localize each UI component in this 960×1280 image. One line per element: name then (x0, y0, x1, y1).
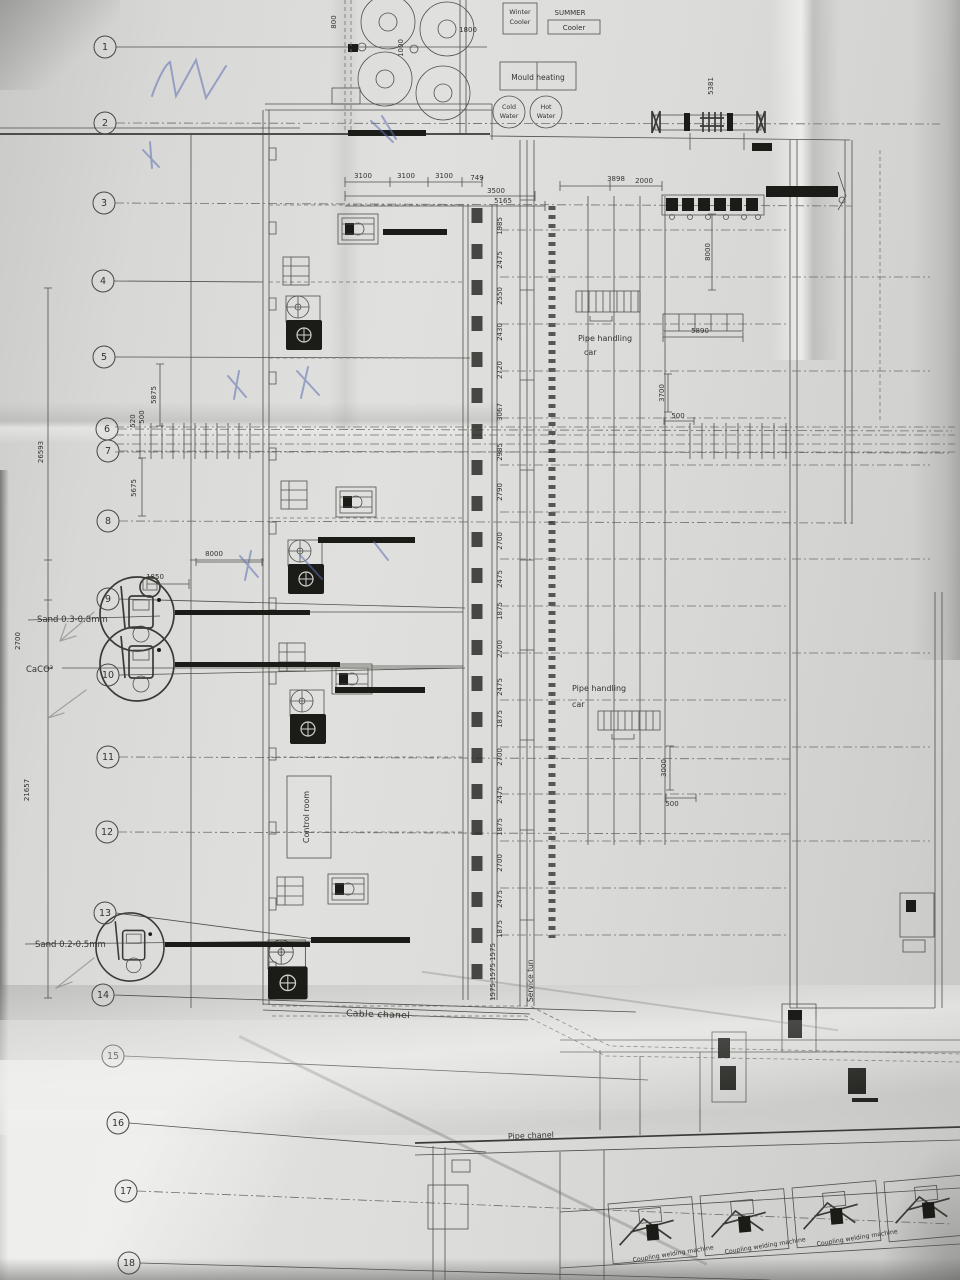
dimension-label: 5165 (494, 197, 512, 205)
flanged-pipe-machine (652, 111, 772, 151)
winter-cooler-text: Winter (509, 8, 531, 16)
svg-text:Cooler: Cooler (510, 18, 531, 26)
dimension-label: 1875 (496, 710, 504, 728)
grid-bubble-number: 13 (99, 908, 111, 919)
pedestal (281, 481, 307, 509)
grid-bubble-13: 13 (94, 902, 330, 941)
grid-axis-bubbles: 123456789101112131415161718 (92, 36, 952, 1280)
dimension-label: 2550 (496, 287, 504, 305)
dimension-label: 5890 (691, 327, 709, 335)
grid-leader-line (124, 1056, 648, 1080)
dimension-label: 2475 (496, 890, 504, 908)
grid-bubble-number: 2 (102, 118, 108, 129)
dimension-label: 5875 (150, 386, 158, 404)
dimension-label: 2475 (496, 251, 504, 269)
dimension-label: 21657 (23, 779, 31, 801)
pipe-rack-lower (598, 711, 660, 739)
dimension-label: 2700 (14, 632, 22, 650)
pipe-train (662, 172, 846, 220)
dimension-label: 2985 (496, 443, 504, 461)
svg-text:Pipe handling: Pipe handling (572, 684, 626, 693)
winter-cooler-label: Winter Cooler (503, 3, 537, 34)
grid-bubble-number: 12 (101, 827, 113, 838)
coupling-welding-machine-label: Coupling welding machine (724, 1236, 806, 1256)
dimension-label: 3100 (354, 172, 372, 180)
pipe-channel-walls (415, 1050, 960, 1280)
fan-unit (290, 690, 326, 744)
dimension-label: 1575 (489, 943, 497, 961)
grid-bubble-12: 12 (96, 821, 790, 843)
service-tunnel-label: Service tun (526, 959, 535, 1002)
grid-bubble-number: 3 (101, 198, 107, 209)
svg-text:car: car (572, 700, 585, 709)
dimension-label: 1800 (459, 26, 477, 34)
fan-unit (288, 540, 324, 594)
dimension-label: 2475 (496, 570, 504, 588)
dimension-label: 1000 (397, 39, 405, 57)
grid-bubble-1: 1 (94, 36, 487, 58)
grid-bubble-7: 7 (97, 440, 952, 462)
control-room-label: Control room (287, 776, 331, 858)
fan-unit (286, 296, 322, 350)
pipe-rack-upper (576, 291, 743, 331)
sand-mixers (96, 577, 174, 981)
grid-bubble-number: 18 (123, 1258, 135, 1269)
sand-coarse-label: Sand 0.3-0.8mm (37, 615, 108, 625)
svg-text:Pipe handling: Pipe handling (578, 334, 632, 343)
grid-bubble-15: 15 (102, 1045, 648, 1080)
pipe-channel-label: Pipe chanel (508, 1130, 554, 1141)
dimension-label: 500 (671, 412, 684, 420)
grid-bubble-17: 17 (115, 1180, 952, 1224)
grid-bubble-number: 9 (105, 594, 111, 605)
dimension-label: 2790 (496, 483, 504, 501)
dimension-label: 3000 (660, 759, 668, 777)
dimension-label: 3100 (397, 172, 415, 180)
dimension-label: 2700 (496, 748, 504, 766)
coupling-welding-machines (608, 1175, 960, 1264)
grid-leader-line (119, 668, 465, 675)
fan-unit (268, 940, 308, 999)
grid-leader-line (140, 1263, 770, 1280)
grid-leader-line (119, 521, 852, 523)
svg-text:Hot: Hot (540, 104, 552, 111)
svg-text:Cold: Cold (502, 104, 516, 111)
dimension-label: 2700 (496, 640, 504, 658)
machines (96, 0, 960, 1280)
pedestal (277, 877, 303, 905)
grid-bubble-number: 1 (102, 42, 108, 53)
winch-machine (328, 874, 368, 904)
svg-text:Cooler: Cooler (563, 24, 586, 32)
mould-cooling-tanks (332, 0, 474, 133)
dimension-label: 2700 (496, 854, 504, 872)
winch-machine (336, 487, 376, 517)
photo-of-blueprint: 123456789101112131415161718 (0, 0, 960, 1280)
grid-bubble-6: 6 (96, 418, 952, 440)
mould-heating-text: Mould heating (511, 73, 565, 82)
dimension-label: 3067 (496, 403, 504, 421)
grid-leader-line (116, 913, 330, 941)
dimension-label: 3100 (435, 172, 453, 180)
dimension-label: 8000 (205, 550, 223, 558)
dimension-label: 520 (129, 414, 137, 427)
dimension-label: 1875 (496, 920, 504, 938)
grid-bubble-number: 16 (112, 1118, 124, 1129)
cable-channel-label: Cable chanel (346, 1009, 411, 1021)
dimension-label: 1875 (496, 818, 504, 836)
dimension-label: 2475 (496, 786, 504, 804)
summer-cooler-text: SUMMER (555, 9, 586, 17)
pipe-handling-car-label-lower: Pipe handling car (572, 684, 626, 709)
grid-leader-line (116, 123, 940, 124)
grid-bubble-number: 4 (100, 276, 106, 287)
grid-leader-line (114, 281, 263, 282)
dimension-label: 5675 (130, 479, 138, 497)
dimension-label: 2700 (496, 532, 504, 550)
caco3-label: CaCO³ (26, 665, 53, 675)
grid-bubble-number: 14 (97, 990, 109, 1001)
grid-bubble-number: 15 (107, 1051, 119, 1062)
dimension-label: 3898 (607, 175, 625, 183)
dimension-label: 749 (470, 174, 483, 182)
grid-bubble-number: 7 (105, 446, 111, 457)
summer-cooler-label: SUMMER Cooler (548, 9, 600, 34)
pedestal (283, 257, 309, 285)
grid-bubble-number: 17 (120, 1186, 132, 1197)
grid-leader-line (118, 429, 952, 431)
dimension-label: 2000 (635, 177, 653, 185)
dimension-label: 500 (138, 410, 146, 423)
dimension-label: 1850 (146, 573, 164, 581)
mould-heating-label: Mould heating (500, 62, 576, 90)
sand-fine-label: Sand 0.2-0.5mm (35, 940, 106, 950)
dimension-label: 1575 (489, 963, 497, 981)
svg-text:car: car (584, 348, 597, 357)
grid-bubble-number: 5 (101, 352, 107, 363)
grid-bubble-11: 11 (97, 746, 790, 768)
pipe-handling-car-label-upper: Pipe handling car (578, 334, 632, 357)
dimension-label: 3500 (487, 187, 505, 195)
dimension-label: 800 (330, 15, 338, 28)
bottom-right-machines (712, 893, 934, 1102)
dimension-label: 8000 (704, 243, 712, 261)
svg-text:Water: Water (500, 113, 519, 120)
grid-bubble-number: 11 (102, 752, 114, 763)
grid-bubble-4: 4 (92, 270, 263, 292)
grid-leader-line (129, 1123, 486, 1152)
dimension-label: 1875 (496, 602, 504, 620)
dimension-label: 5381 (707, 77, 715, 95)
dimension-label: 2475 (496, 678, 504, 696)
grid-bubble-number: 6 (104, 424, 110, 435)
control-room-text: Control room (302, 791, 311, 843)
dimension-label: 2720 (496, 361, 504, 379)
grid-bubble-8: 8 (97, 510, 852, 532)
coupling-welding-machine-label: Coupling welding machine (816, 1228, 898, 1248)
dimension-label: 2430 (496, 323, 504, 341)
grid-bubble-16: 16 (107, 1112, 486, 1152)
dimension-labels: 8001000180053813100310031007493500516538… (14, 15, 715, 1001)
grid-bubble-5: 5 (93, 346, 470, 368)
dimension-label: 3700 (658, 384, 666, 402)
blueprint-drawing: 123456789101112131415161718 (0, 0, 960, 1280)
dimension-label: 1985 (496, 217, 504, 235)
dimension-label: 26593 (37, 441, 45, 463)
rail-tracks (115, 196, 955, 998)
svg-text:Water: Water (537, 113, 556, 120)
winch-machine (338, 214, 378, 244)
grid-bubble-number: 8 (105, 516, 111, 527)
dimension-label: 1575 (489, 983, 497, 1001)
dimension-label: 500 (665, 800, 678, 808)
